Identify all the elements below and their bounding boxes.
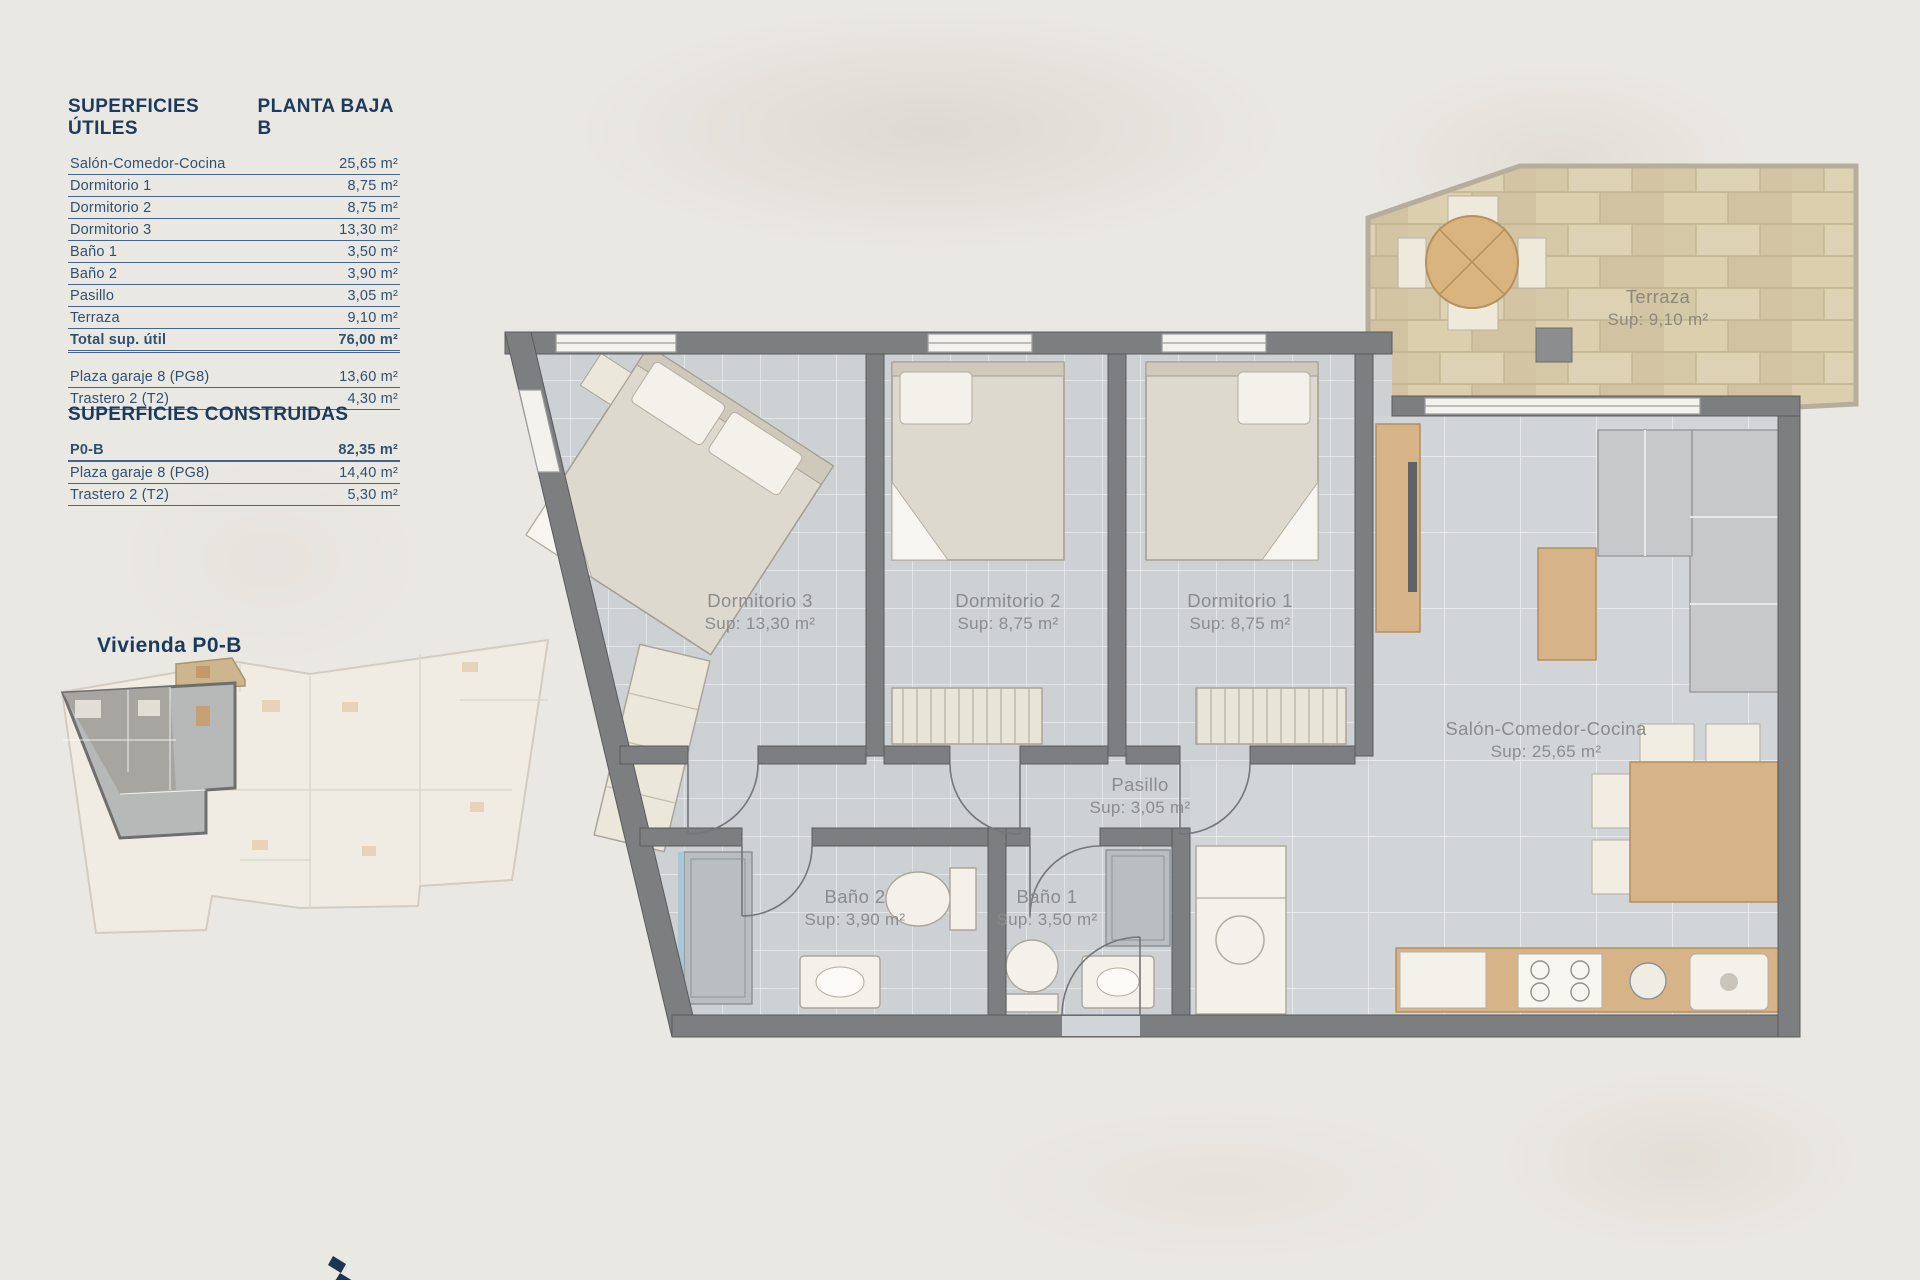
key-plan-title: Vivienda P0-B <box>97 634 242 658</box>
table-row: Plaza garaje 8 (PG8) 14,40 m² <box>68 462 400 484</box>
room-label-salon: Salón-Comedor-Cocina Sup: 25,65 m² <box>1445 718 1646 762</box>
room-label-dormitorio-1: Dormitorio 1 Sup: 8,75 m² <box>1187 590 1293 634</box>
room-label-pasillo: Pasillo Sup: 3,05 m² <box>1090 774 1191 818</box>
table-row: Trastero 2 (T2) 5,30 m² <box>68 484 400 506</box>
room-label-bano-1: Baño 1 Sup: 3,50 m² <box>997 886 1098 930</box>
table-row: P0-B 82,35 m² <box>68 439 400 462</box>
table-rows: Salón-Comedor-Cocina 25,65 m² Dormitorio… <box>68 153 400 410</box>
table-row: Terraza 9,10 m² <box>68 307 400 329</box>
plan-title: PLANTA BAJA B <box>258 96 400 140</box>
table-row: Baño 2 3,90 m² <box>68 263 400 285</box>
coffee-table-icon <box>1538 548 1596 660</box>
table-row: Salón-Comedor-Cocina 25,65 m² <box>68 153 400 175</box>
table-header: SUPERFICIES ÚTILES PLANTA BAJA B <box>68 96 400 140</box>
table-rows: P0-B 82,35 m² Plaza garaje 8 (PG8) 14,40… <box>68 439 400 506</box>
entrance-opening <box>1062 1016 1140 1036</box>
floorplan-sheet: Terraza Sup: 9,10 m² Dormitorio 3 Sup: 1… <box>0 0 1920 1280</box>
terrace-drain <box>1536 328 1572 362</box>
key-plan <box>62 640 548 933</box>
room-label-bano-2: Baño 2 Sup: 3,90 m² <box>805 886 906 930</box>
table-row: Baño 1 3,50 m² <box>68 241 400 263</box>
tv-unit-icon <box>1376 424 1420 632</box>
single-bed-icon <box>892 362 1064 560</box>
single-bed-icon <box>1146 362 1318 560</box>
table-row: Dormitorio 1 8,75 m² <box>68 175 400 197</box>
washbasin-icon <box>1082 956 1154 1008</box>
superficies-utiles-table: SUPERFICIES ÚTILES PLANTA BAJA B Salón-C… <box>68 96 400 410</box>
table-total-row: Total sup. útil 76,00 m² <box>68 329 400 353</box>
washbasin-icon <box>800 956 880 1008</box>
ink-marks <box>328 1256 353 1280</box>
superficies-construidas-table: SUPERFICIES CONSTRUIDAS P0-B 82,35 m² Pl… <box>68 404 400 506</box>
toilet-icon <box>1006 940 1058 1012</box>
wardrobe-icon <box>1196 688 1346 744</box>
wardrobe-icon <box>892 688 1042 744</box>
table-row: Plaza garaje 8 (PG8) 13,60 m² <box>68 366 400 388</box>
room-label-dormitorio-2: Dormitorio 2 Sup: 8,75 m² <box>955 590 1061 634</box>
table-row: Dormitorio 2 8,75 m² <box>68 197 400 219</box>
table-row: Dormitorio 3 13,30 m² <box>68 219 400 241</box>
shower-icon <box>678 852 752 1004</box>
table-title: SUPERFICIES ÚTILES <box>68 96 258 140</box>
table-row: Pasillo 3,05 m² <box>68 285 400 307</box>
room-label-dormitorio-3: Dormitorio 3 Sup: 13,30 m² <box>705 590 816 634</box>
table-title: SUPERFICIES CONSTRUIDAS <box>68 404 400 426</box>
room-label-terraza: Terraza Sup: 9,10 m² <box>1608 286 1709 330</box>
shower-icon <box>1106 850 1170 946</box>
